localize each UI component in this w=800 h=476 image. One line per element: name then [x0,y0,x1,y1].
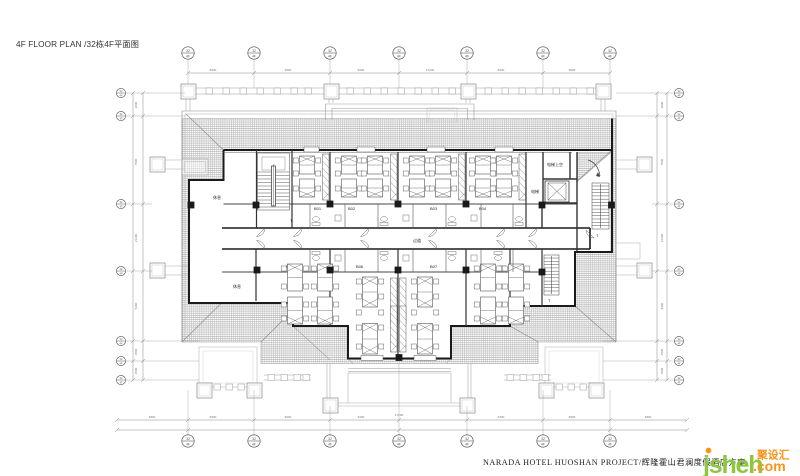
svg-text:休息: 休息 [233,283,241,289]
svg-text:3000: 3000 [660,101,664,108]
svg-text:电梯: 电梯 [531,188,539,194]
svg-text:4800: 4800 [645,415,652,419]
svg-text:1500: 1500 [134,348,138,355]
svg-text:6200: 6200 [498,415,505,419]
svg-text:7500: 7500 [660,158,664,165]
svg-text:1500: 1500 [660,348,664,355]
svg-text:1500: 1500 [134,367,138,374]
svg-text:21300: 21300 [134,233,138,242]
svg-text:21300: 21300 [660,233,664,242]
svg-text:6000: 6000 [210,415,217,419]
svg-text:过道: 过道 [413,237,421,243]
svg-text:3000: 3000 [134,101,138,108]
svg-text:B02: B02 [348,206,356,211]
svg-text:7500: 7500 [134,158,138,165]
svg-text:B01: B01 [314,206,322,211]
svg-text:电梯上空: 电梯上空 [547,161,563,167]
svg-text:B07: B07 [430,264,438,269]
svg-text:6900: 6900 [285,68,292,72]
svg-text:6900: 6900 [285,415,292,419]
svg-text:5400: 5400 [134,302,138,309]
svg-text:B04: B04 [479,206,487,211]
svg-text:.com: .com [753,458,786,474]
svg-text:6200: 6200 [358,415,365,419]
svg-text:B03: B03 [430,206,438,211]
svg-text:5400: 5400 [660,302,664,309]
svg-text:B06: B06 [356,264,364,269]
svg-text:6900: 6900 [569,68,576,72]
svg-text:4800: 4800 [149,415,156,419]
svg-text:6900: 6900 [569,415,576,419]
svg-text:6200: 6200 [498,68,505,72]
svg-text:4F FLOOR PLAN /32栋4F平面图: 4F FLOOR PLAN /32栋4F平面图 [16,39,139,49]
svg-text:6200: 6200 [358,68,365,72]
svg-text:6000: 6000 [210,68,217,72]
svg-text:休息: 休息 [213,194,221,200]
svg-text:17200: 17200 [426,68,435,72]
svg-text:1500: 1500 [660,367,664,374]
